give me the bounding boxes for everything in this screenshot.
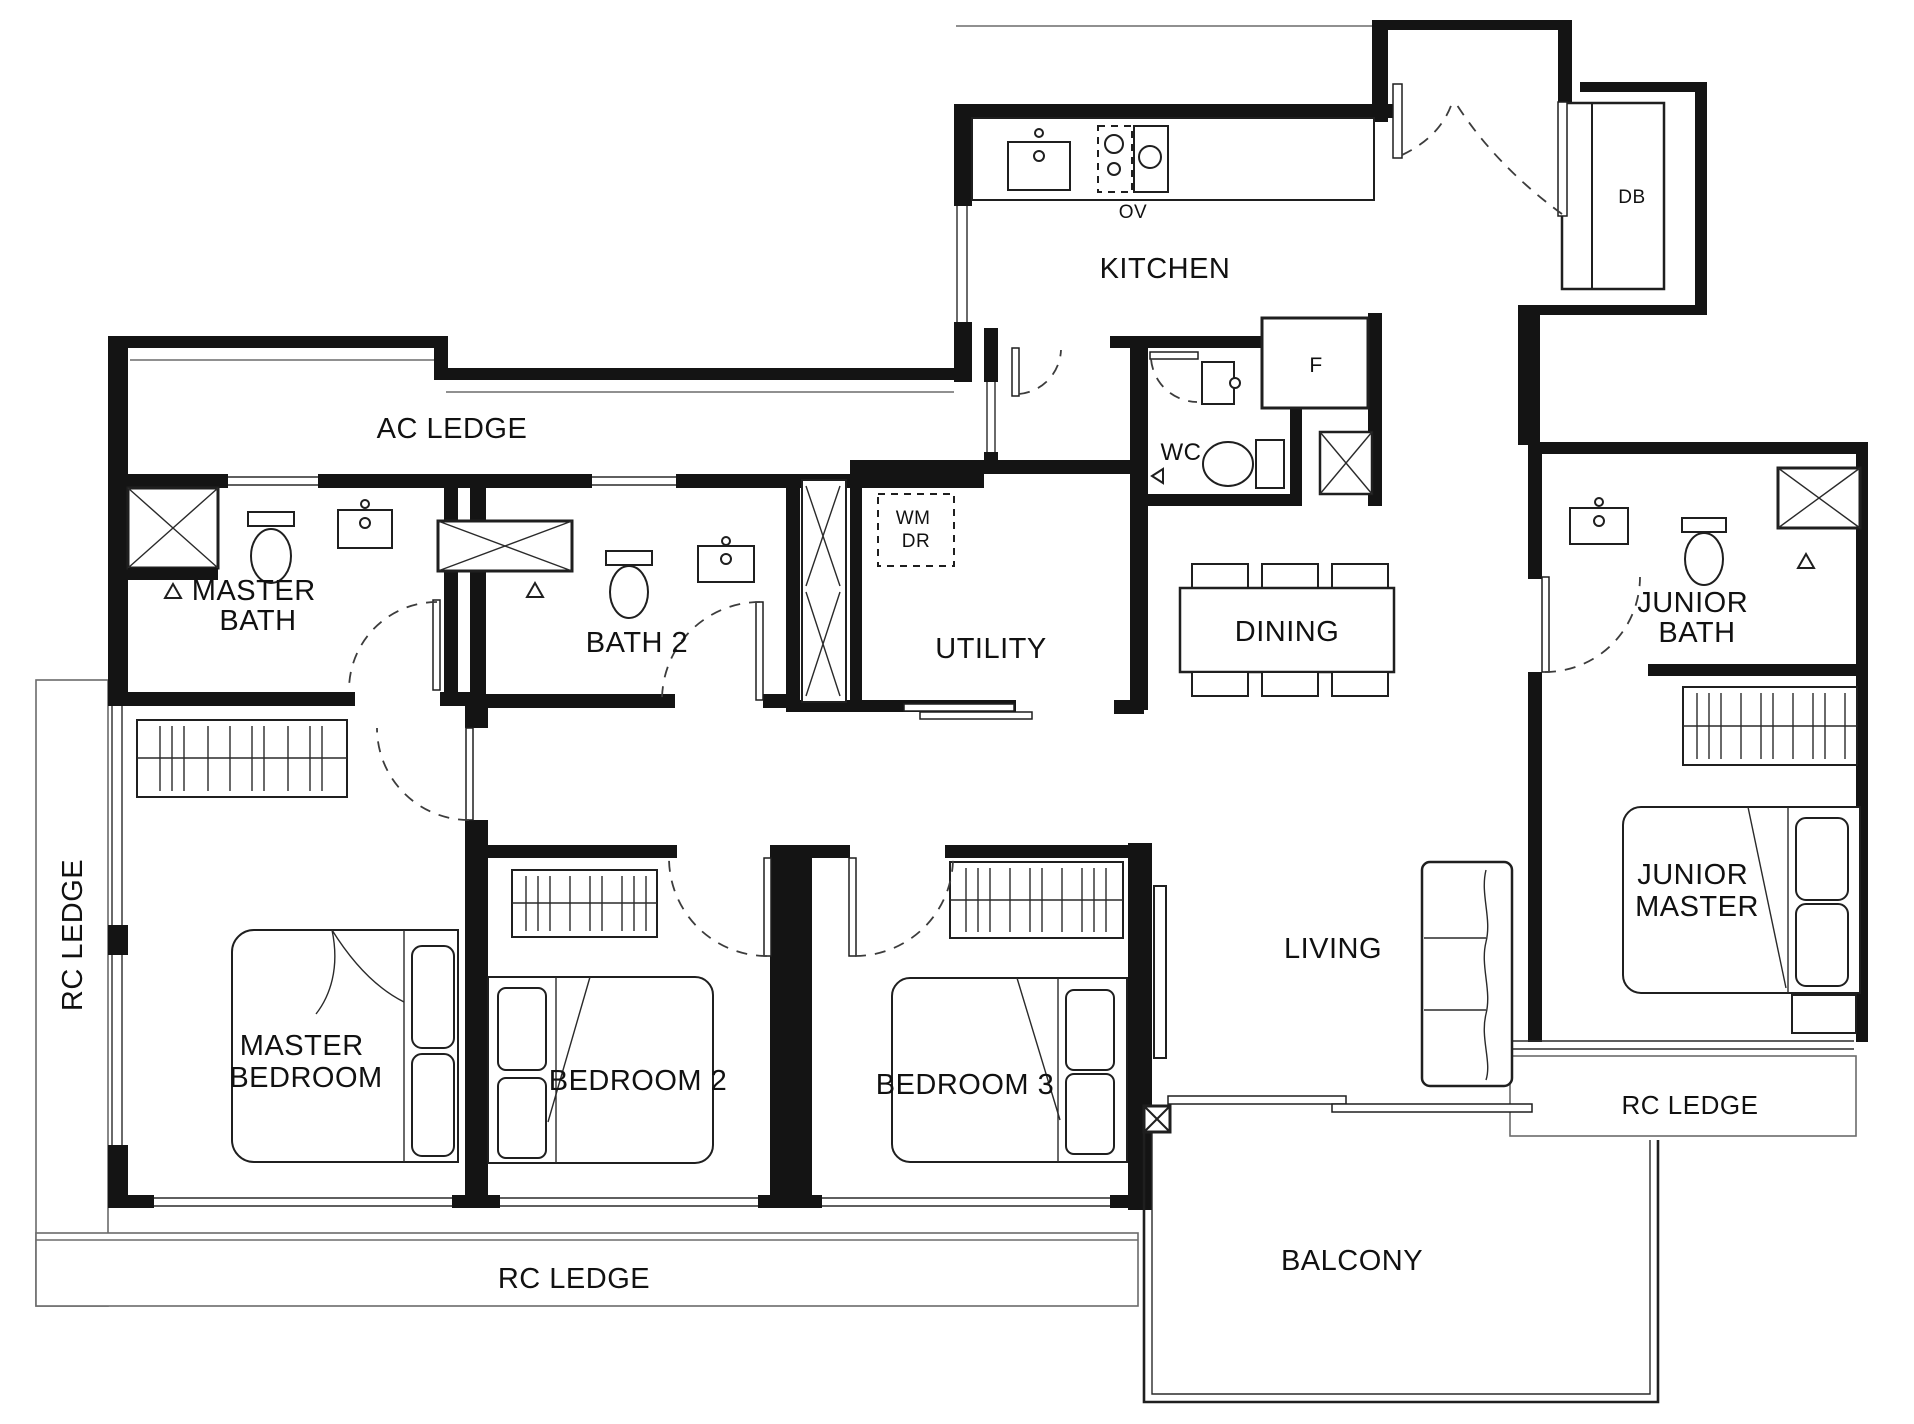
- window-bedrooms-south: [154, 1198, 1110, 1206]
- floor-plan-drawing: AC LEDGE KITCHEN OV DB F WC WM DR MASTER…: [0, 0, 1914, 1424]
- vanity-sink-icon: [1570, 498, 1628, 544]
- label-distribution-board: DB: [1618, 187, 1645, 208]
- distribution-board: [1562, 103, 1664, 289]
- dining-chair: [1192, 564, 1248, 588]
- wardrobes: [137, 687, 1857, 938]
- toilet-icon: [1682, 518, 1726, 585]
- floor-plan-page: AC LEDGE KITCHEN OV DB F WC WM DR MASTER…: [0, 0, 1914, 1424]
- dining-chair: [1332, 564, 1388, 588]
- label-oven: OV: [1119, 202, 1147, 223]
- label-junior-bath: JUNIOR BATH: [1637, 587, 1757, 649]
- duct-shaft: [802, 480, 846, 702]
- floor-trap-icon: [527, 583, 543, 597]
- pillow: [1066, 990, 1114, 1070]
- label-bedroom3: BEDROOM 3: [876, 1069, 1055, 1101]
- junior-master-door: [1542, 577, 1640, 672]
- bedroom2-door: [669, 858, 771, 956]
- label-bath2: BATH 2: [586, 627, 688, 659]
- junior-bath-fixtures: [1570, 468, 1860, 585]
- label-fridge: F: [1309, 354, 1322, 377]
- label-master-bath: MASTER BATH: [192, 575, 324, 637]
- window-bath2: [592, 477, 676, 485]
- label-washer-dryer: WM DR: [896, 508, 937, 552]
- utility-sliding-door: [904, 704, 1032, 719]
- dining-chair: [1192, 672, 1248, 696]
- label-balcony: BALCONY: [1281, 1245, 1423, 1277]
- vanity-sink-icon: [338, 500, 392, 548]
- pillow: [1796, 818, 1848, 900]
- foyer-door: [1012, 348, 1061, 396]
- wc-sink: [1202, 362, 1240, 404]
- label-ac-ledge: AC LEDGE: [377, 413, 528, 445]
- pillow: [1066, 1074, 1114, 1154]
- vanity-sink-icon: [698, 537, 754, 582]
- washer-dryer: [878, 494, 954, 566]
- floor-trap-icon: [1152, 469, 1163, 483]
- label-rc-ledge-bottom: RC LEDGE: [498, 1263, 650, 1295]
- wc-door: [1150, 352, 1198, 402]
- label-junior-master: JUNIOR MASTER: [1635, 859, 1759, 923]
- label-utility: UTILITY: [935, 633, 1046, 665]
- shower-icon: [438, 521, 572, 597]
- kitchen-fixtures: [972, 118, 1374, 200]
- dining-chair: [1262, 564, 1318, 588]
- mullion-post: [1144, 1106, 1170, 1132]
- dining-chair: [1332, 672, 1388, 696]
- bedroom3-door: [849, 858, 953, 956]
- wc-toilet: [1203, 440, 1284, 488]
- master-bath-door: [349, 600, 440, 690]
- label-master-bedroom: MASTER BEDROOM: [229, 1030, 382, 1094]
- pillow: [1796, 904, 1848, 986]
- wardrobe-master: [137, 720, 347, 797]
- pillow: [498, 1078, 546, 1158]
- floor-trap-icon: [1798, 554, 1814, 568]
- bedside-table: [1792, 995, 1856, 1033]
- pillow: [498, 988, 546, 1070]
- window-kitchen-west: [957, 206, 967, 322]
- wardrobe-bedroom3: [950, 862, 1123, 938]
- living-fixtures: [1154, 862, 1512, 1086]
- window-foyer-west: [987, 382, 995, 452]
- balcony-sliding-door: [1144, 1096, 1532, 1132]
- floor-trap-icon: [165, 584, 181, 598]
- window-junior-master-south: [1512, 1041, 1854, 1049]
- dining-chair: [1262, 672, 1318, 696]
- toilet-icon: [248, 512, 294, 583]
- label-wc: WC: [1161, 439, 1202, 466]
- wc-shaft: [1320, 432, 1372, 494]
- sofa: [1422, 862, 1512, 1086]
- label-bedroom2: BEDROOM 2: [549, 1065, 728, 1097]
- entry-door: [1393, 84, 1567, 216]
- master-bedroom-door: [377, 728, 473, 820]
- toilet-icon: [606, 551, 652, 618]
- window-master-bath: [228, 477, 318, 485]
- label-kitchen: KITCHEN: [1100, 253, 1231, 285]
- pillow: [412, 946, 454, 1048]
- shower-icon: [1778, 468, 1860, 568]
- label-rc-ledge-right: RC LEDGE: [1622, 1090, 1759, 1120]
- label-rc-ledge-left: RC LEDGE: [57, 859, 89, 1011]
- label-living: LIVING: [1284, 933, 1382, 965]
- wardrobe-junior-master: [1683, 687, 1857, 765]
- tv-console: [1154, 886, 1166, 1058]
- label-dining: DINING: [1235, 616, 1340, 648]
- wardrobe-bedroom2: [512, 870, 657, 937]
- pillow: [412, 1054, 454, 1156]
